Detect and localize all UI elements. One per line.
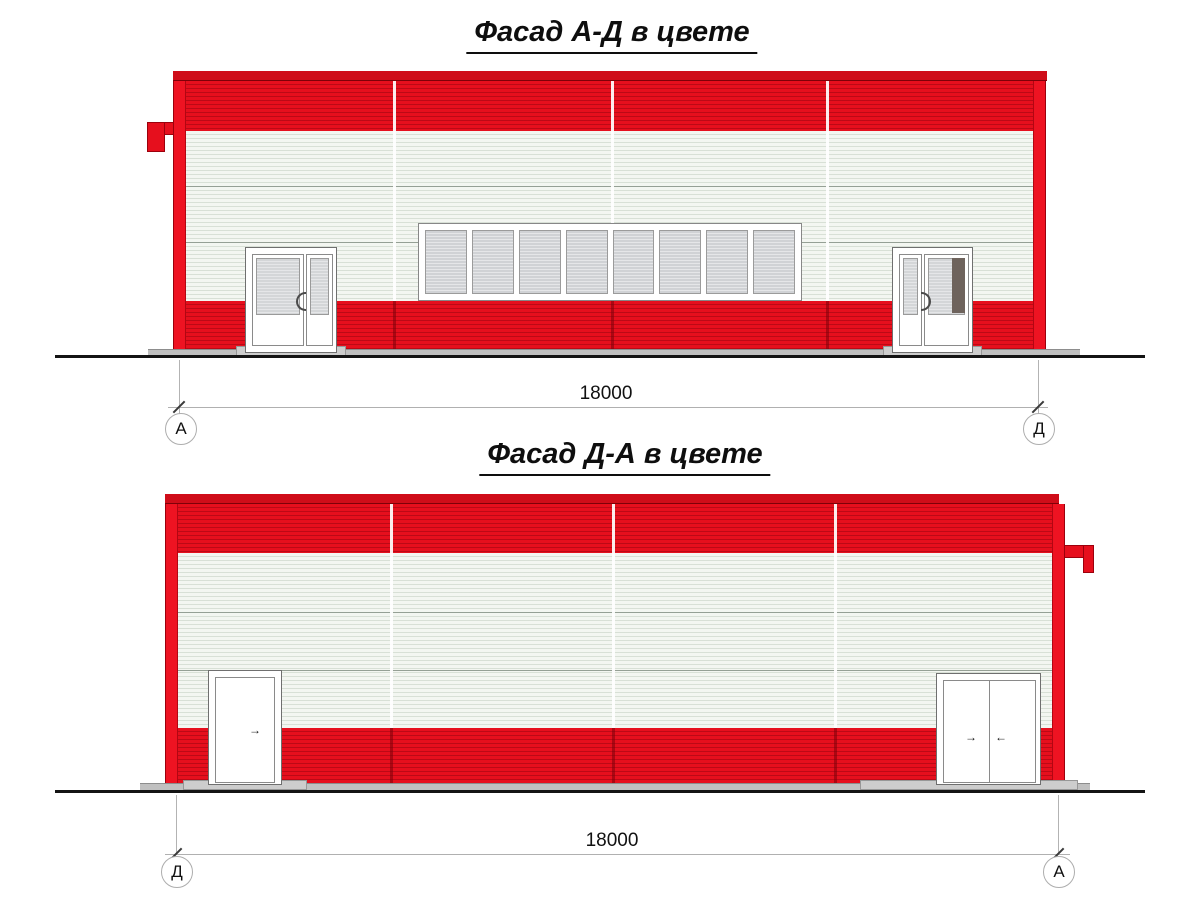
gutter-outlet-icon (147, 122, 165, 152)
panel-joint-line (178, 612, 1052, 613)
gutter-outlet-icon (1083, 545, 1094, 573)
door-leaf (306, 254, 333, 346)
window-pane (519, 230, 561, 294)
facade-drawing-sheet: Фасад А-Д в цвете (0, 0, 1200, 900)
window-pane (753, 230, 795, 294)
ground-line (55, 790, 1145, 793)
window-pane (566, 230, 608, 294)
window-pane (659, 230, 701, 294)
wall-seam (393, 81, 396, 353)
wall-seam (611, 81, 614, 353)
corner-strip-right (1033, 81, 1046, 353)
roof-cap (173, 71, 1047, 81)
window-pane (613, 230, 655, 294)
dimension-value: 18000 (546, 383, 666, 405)
corner-strip-left (173, 81, 186, 353)
door-swing-arrow-icon: → (965, 732, 977, 742)
facade-da-title: Фасад Д-А в цвете (479, 438, 770, 476)
window-pane (706, 230, 748, 294)
wall-seam (834, 504, 837, 785)
door-glass (256, 258, 300, 315)
door-swing-arrow-icon: → (249, 725, 261, 735)
door-leaf (215, 677, 275, 783)
door-glass (310, 258, 329, 315)
window-pane (472, 230, 514, 294)
service-door-single: → (208, 670, 282, 785)
dimension-value: 18000 (552, 830, 672, 852)
axis-marker-a: А (1043, 856, 1075, 888)
wall-band-white (178, 553, 1052, 728)
wall-band-red-top (186, 81, 1033, 131)
window-pane (425, 230, 467, 294)
corner-strip-left (165, 504, 178, 790)
entrance-door-glazed-right (892, 247, 973, 353)
door-glass (903, 258, 918, 315)
panel-joint-line (186, 186, 1033, 187)
wall-seam (826, 81, 829, 353)
wall-seam (390, 504, 393, 785)
wall-band-red-top (178, 504, 1052, 553)
roof-cap (165, 494, 1059, 504)
facade-ad-title: Фасад А-Д в цвете (466, 16, 757, 54)
entrance-door-glazed-left (245, 247, 337, 353)
ground-line (55, 355, 1145, 358)
wall-band-red-bottom (178, 728, 1052, 785)
wall-seam (612, 504, 615, 785)
service-door-double: → ← (936, 673, 1041, 785)
axis-marker-d: Д (1023, 413, 1055, 445)
axis-marker-a: А (165, 413, 197, 445)
panel-joint-line (178, 670, 1052, 671)
door-swing-arrow-icon: ← (995, 732, 1007, 742)
dark-door-pane (952, 258, 965, 313)
dimension-line (168, 407, 1048, 408)
extension-line (176, 795, 177, 853)
dimension-line (165, 854, 1070, 855)
door-leaf (899, 254, 922, 346)
extension-line (1058, 795, 1059, 853)
ribbon-window (418, 223, 802, 301)
corner-strip-right (1052, 504, 1065, 785)
axis-marker-d: Д (161, 856, 193, 888)
